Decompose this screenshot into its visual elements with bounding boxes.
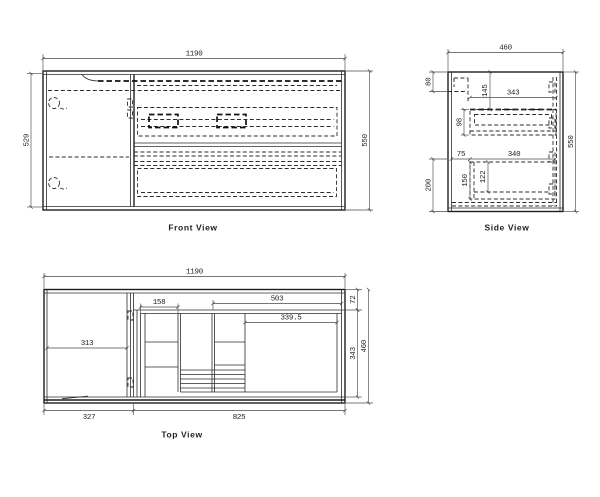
back-panel-clip xyxy=(549,118,555,128)
drawing-svg: 1190 529 550 Front View xyxy=(0,0,600,497)
side-width-dim: 460 xyxy=(499,45,512,53)
divider-clip xyxy=(128,110,133,118)
side-bottom-section-dim: 200 xyxy=(426,178,434,191)
side-height-dim: 550 xyxy=(568,135,576,148)
top-left-section-dim: 327 xyxy=(83,414,96,422)
back-panel-clip xyxy=(549,82,555,92)
side-top-thickness-dim: 80 xyxy=(426,77,434,86)
upper-drawer-hidden xyxy=(138,108,338,137)
side-view-label: Side View xyxy=(485,223,530,233)
hinge-arm xyxy=(60,108,67,109)
drawer-runner xyxy=(149,115,178,128)
side-inner-height-dim: 122 xyxy=(480,171,488,184)
top-view-label: Top View xyxy=(161,430,202,440)
front-cabinet-outline xyxy=(43,71,345,210)
top-view: 1190 158 503 339.5 313 72 343 460 xyxy=(44,269,373,440)
top-basin-width-dim: 339.5 xyxy=(280,315,302,323)
front-view: 1190 529 550 Front View xyxy=(24,51,374,233)
hinge-icon xyxy=(49,178,60,189)
hinge-arm xyxy=(60,188,67,189)
front-height-left-dim: 529 xyxy=(24,134,32,147)
front-view-label: Front View xyxy=(168,223,217,233)
side-basin-depth-dim: 145 xyxy=(482,84,490,97)
side-bottom-drawer-height-dim: 150 xyxy=(462,173,470,186)
top-inner-depth-dim: 343 xyxy=(350,346,358,359)
top-back-gap-dim: 72 xyxy=(350,296,358,304)
top-depth-dim: 460 xyxy=(361,339,369,352)
side-top-drawer-width-dim: 343 xyxy=(507,90,520,98)
side-cabinet-outline xyxy=(448,72,563,212)
back-panel-clip xyxy=(549,152,555,162)
side-bottom-drawer-width-dim: 340 xyxy=(508,151,521,159)
top-width-dim: 1190 xyxy=(186,269,204,277)
door-edge-chamfer xyxy=(62,396,88,399)
top-door-width-dim: 313 xyxy=(81,340,94,348)
side-front-offset-dim: 75 xyxy=(457,151,466,159)
side-top-drawer-height-dim: 98 xyxy=(457,118,465,126)
front-width-dim: 1190 xyxy=(186,51,204,59)
divider-clip xyxy=(128,99,133,107)
top-right-section-dim: 825 xyxy=(233,414,246,422)
back-panel-clip xyxy=(549,184,555,194)
top-drawer-inner-dim: 158 xyxy=(153,299,166,307)
top-right-opening-dim: 503 xyxy=(271,296,284,304)
top-drawer-grid xyxy=(145,314,337,398)
hinge-icon xyxy=(49,98,60,109)
basin-corner-curve xyxy=(82,75,98,82)
front-hidden-lines xyxy=(48,81,342,197)
side-view: 460 550 80 200 145 343 98 75 340 xyxy=(426,45,580,233)
front-height-right-dim: 550 xyxy=(362,133,370,146)
technical-drawing-sheet: 1190 529 550 Front View xyxy=(0,0,600,497)
top-dimensions: 1190 158 503 339.5 313 72 343 460 xyxy=(44,269,373,423)
drawer-runner xyxy=(217,115,246,128)
